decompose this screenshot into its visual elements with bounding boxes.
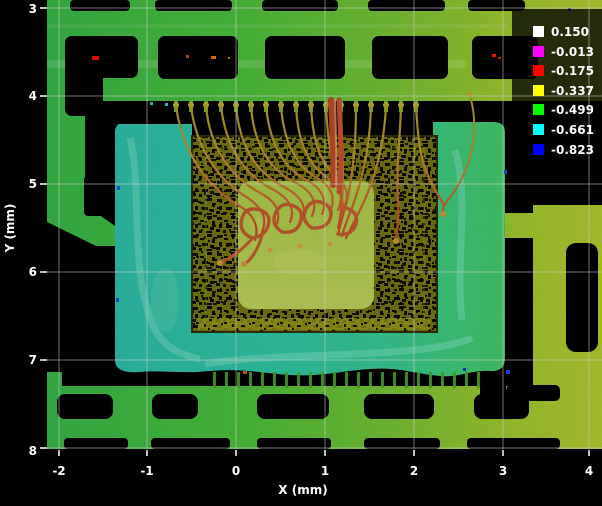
height-map-figure: 0.150 -0.013 -0.175 -0.337 -0.499 -0.661… — [0, 0, 602, 506]
x-tick-5: 3 — [499, 464, 507, 478]
x-tick-0: -2 — [52, 464, 65, 478]
legend-label-0: 0.150 — [551, 25, 589, 39]
measurement-viewer: 0.150 -0.013 -0.175 -0.337 -0.499 -0.661… — [0, 0, 602, 506]
x-tick-3: 1 — [321, 464, 329, 478]
y-tick-5: 8 — [29, 444, 37, 458]
legend-swatch-2 — [533, 65, 544, 76]
y-tick-3: 6 — [29, 265, 37, 279]
legend-row: -0.823 — [533, 143, 594, 157]
y-tick-0: 3 — [29, 2, 37, 16]
legend-label-3: -0.337 — [551, 84, 594, 98]
legend-swatch-5 — [533, 124, 544, 135]
heatmap-canvas[interactable] — [47, 0, 602, 450]
legend-row: -0.337 — [533, 84, 594, 98]
x-tick-2: 0 — [232, 464, 240, 478]
legend-swatch-1 — [533, 46, 544, 57]
y-tick-2: 5 — [29, 177, 37, 191]
legend-row: -0.013 — [533, 45, 594, 59]
x-axis-label: X (mm) — [278, 483, 327, 497]
x-tick-4: 2 — [410, 464, 418, 478]
legend-row: -0.175 — [533, 64, 594, 78]
legend-swatch-3 — [533, 85, 544, 96]
legend-swatch-4 — [533, 104, 544, 115]
legend-label-2: -0.175 — [551, 64, 594, 78]
legend-row: -0.499 — [533, 103, 594, 117]
legend-label-4: -0.499 — [551, 103, 594, 117]
y-tick-1: 4 — [29, 89, 37, 103]
legend-row: -0.661 — [533, 123, 594, 137]
y-tick-4: 7 — [29, 353, 37, 367]
legend-label-1: -0.013 — [551, 45, 594, 59]
x-tick-1: -1 — [140, 464, 153, 478]
legend-swatch-6 — [533, 144, 544, 155]
y-axis-label: Y (mm) — [3, 204, 17, 254]
legend-label-6: -0.823 — [551, 143, 594, 157]
legend-label-5: -0.661 — [551, 123, 594, 137]
legend-swatch-0 — [533, 26, 544, 37]
legend-row: 0.150 — [533, 25, 589, 39]
x-tick-6: 4 — [585, 464, 593, 478]
